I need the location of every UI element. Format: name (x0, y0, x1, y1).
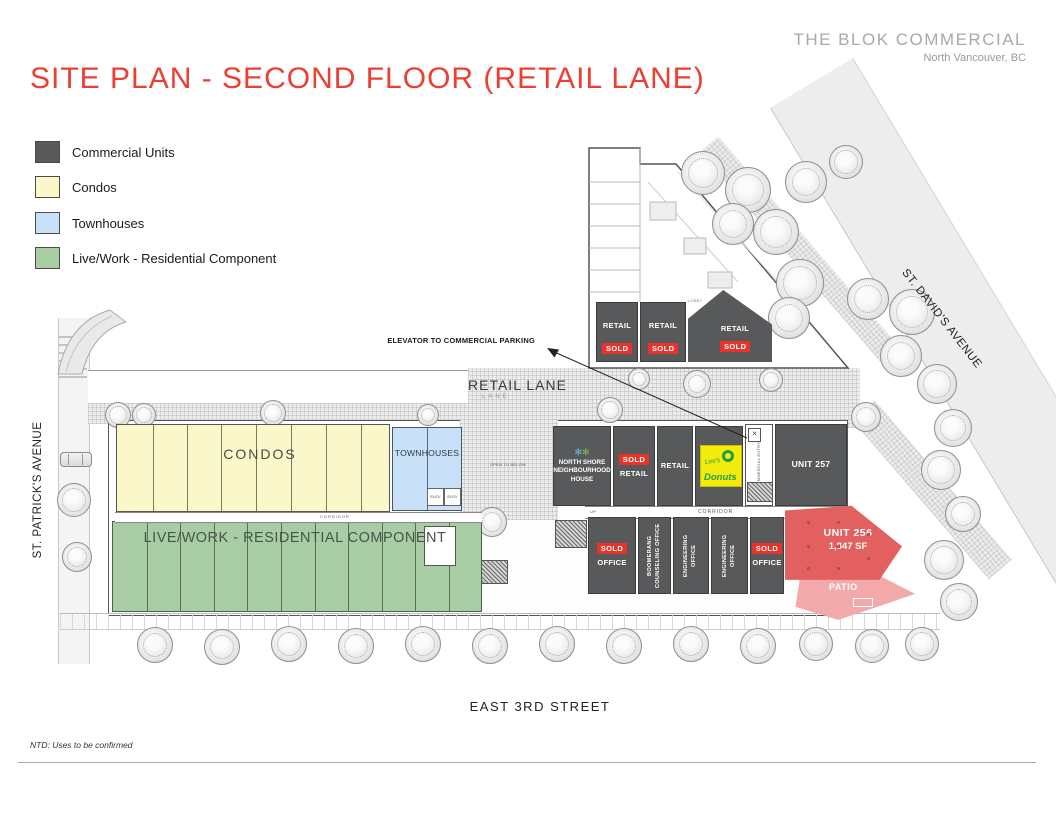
unit-division-line (291, 425, 292, 511)
unit-label: UNIT 257 (792, 459, 831, 470)
donuts-name-text: Donuts (704, 472, 737, 483)
donut-icon (722, 450, 734, 462)
column-dot (867, 533, 870, 536)
unit-label: OFFICE (597, 558, 626, 568)
zone-townhouses-label: TOWNHOUSES (390, 448, 464, 458)
mech-block (747, 482, 773, 502)
site-plan: RETAIL SOLD RETAIL SOLD RETAIL SOLD COND… (0, 0, 1056, 816)
tree-icon (712, 203, 754, 245)
corridor-west (115, 512, 482, 523)
tree-icon (740, 628, 776, 664)
zone-condos (116, 424, 390, 512)
unit-label: RETAIL (597, 321, 637, 331)
unit-division-line (153, 425, 154, 511)
unit-label: BOOMERANG COUNSELING OFFICE (647, 523, 663, 589)
stair-block (555, 520, 587, 548)
tree-icon (851, 402, 881, 432)
tree-icon (137, 627, 173, 663)
unit-engineering-2: ENGINEERING OFFICE (711, 517, 748, 594)
tree-icon (271, 626, 307, 662)
tree-icon (921, 450, 961, 490)
tree-icon (539, 626, 575, 662)
unit-label: ENGINEERING OFFICE (722, 533, 738, 579)
donuts-script-text: Lee's (705, 457, 721, 466)
patio-label: PATIO (829, 582, 858, 592)
elevator-annotation: ELEVATOR TO COMMERCIAL PARKING (377, 336, 535, 345)
column-dot (837, 567, 840, 570)
tree-icon (338, 628, 374, 664)
corridor-label: CORRIDOR (320, 514, 350, 519)
tree-icon (606, 628, 642, 664)
sold-badge: SOLD (752, 543, 782, 554)
tree-icon (785, 161, 827, 203)
tree-icon (673, 626, 709, 662)
tree-icon (417, 404, 439, 426)
people-icon: ✻✻ (574, 448, 589, 457)
column-dot (807, 521, 810, 524)
note-text: NTD: Uses to be confirmed (30, 740, 133, 750)
elevator-arrow (540, 338, 755, 446)
street-label-east-3rd: EAST 3RD STREET (440, 699, 640, 714)
unit-boomerang-counseling: BOOMERANG COUNSELING OFFICE (638, 517, 671, 594)
zone-livework-label: LIVE/WORK - RESIDENTIAL COMPONENT (130, 530, 460, 546)
open-below-label: OPEN TO BELOW (486, 462, 530, 467)
lobby-label: LOBBY (688, 298, 702, 303)
tree-icon (260, 400, 286, 426)
unit-label: RETAIL (698, 324, 772, 334)
unit-label: ENGINEERING OFFICE (683, 533, 699, 579)
site-plan-page: THE BLOK COMMERCIAL North Vancouver, BC … (0, 0, 1056, 816)
column-dot (837, 521, 840, 524)
tree-icon (905, 627, 939, 661)
up-label: UP (590, 509, 596, 514)
tree-icon (62, 542, 92, 572)
elevator-box: ELEV (427, 488, 444, 506)
tree-icon (847, 278, 889, 320)
tree-icon (855, 629, 889, 663)
unit-division-line (221, 425, 222, 511)
lane-ramp (52, 302, 147, 377)
tree-icon (945, 496, 981, 532)
corridor-label: CORRIDOR (698, 509, 733, 515)
unit-office-sold-2: SOLD OFFICE (750, 517, 784, 594)
tree-icon (934, 409, 972, 447)
tree-icon (940, 583, 978, 621)
unit-area: 1,847 SF (803, 541, 893, 552)
donuts-logo: Lee's Donuts (700, 445, 742, 487)
stair-block (478, 560, 508, 584)
tree-icon (759, 368, 783, 392)
unit-engineering-1: ENGINEERING OFFICE (673, 517, 709, 594)
unit-division-line (256, 425, 257, 511)
unit-label: RETAIL (620, 469, 648, 479)
column-dot (837, 545, 840, 548)
tree-icon (880, 335, 922, 377)
unit-label: HOUSE (553, 476, 610, 484)
tree-icon (768, 297, 810, 339)
column-dot (807, 567, 810, 570)
tree-icon (924, 540, 964, 580)
tree-icon (57, 483, 91, 517)
unit-division-line (326, 425, 327, 511)
tree-icon (829, 145, 863, 179)
south-sidewalk (60, 613, 940, 630)
column-dot (807, 545, 810, 548)
tree-icon (405, 626, 441, 662)
unit-division-line (361, 425, 362, 511)
lane-band (88, 370, 468, 404)
tree-icon (753, 209, 799, 255)
unit-label: UNIT 256 (803, 527, 893, 539)
divider-line (18, 762, 1036, 763)
unit-label: NORTH SHORE (553, 459, 610, 467)
tree-icon (917, 364, 957, 404)
tree-icon (204, 629, 240, 665)
tree-icon (472, 628, 508, 664)
tree-icon (681, 151, 725, 195)
unit-office-sold-1: SOLD OFFICE (588, 517, 636, 594)
car-icon (60, 452, 92, 467)
unit-label: OFFICE (752, 558, 781, 568)
sold-badge: SOLD (619, 454, 649, 465)
elevator-box: ELEV (444, 488, 461, 506)
unit-label: RETAIL (661, 461, 689, 471)
street-label-st-patricks: ST. PATRICK'S AVENUE (32, 405, 48, 575)
zone-condos-label: CONDOS (200, 446, 320, 462)
sold-badge: SOLD (597, 543, 627, 554)
unit-257: UNIT 257 (775, 424, 847, 506)
unit-division-line (187, 425, 188, 511)
tree-icon (799, 627, 833, 661)
lane-sub-label: LANE (482, 394, 510, 400)
unit-label: RETAIL (641, 321, 685, 331)
unit-256: UNIT 256 1,847 SF (785, 505, 918, 583)
column-dot (867, 557, 870, 560)
unit-label: NEIGHBOURHOOD (553, 467, 610, 475)
patio-furniture (853, 598, 873, 607)
